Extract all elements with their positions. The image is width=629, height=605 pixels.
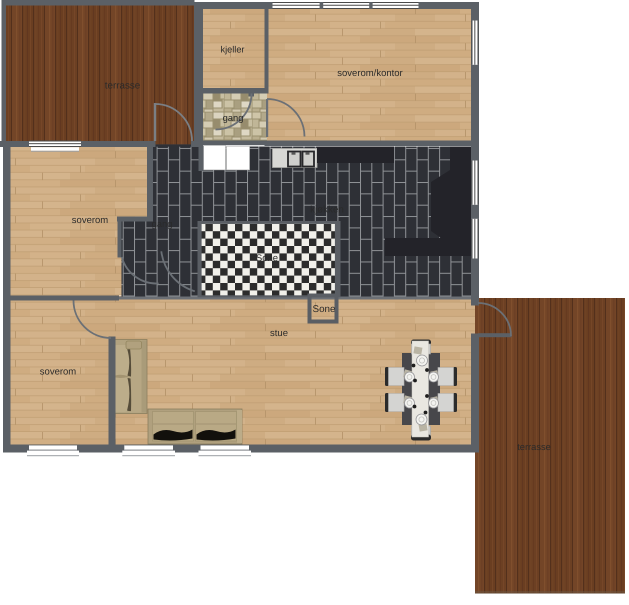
svg-text:terrasse: terrasse <box>517 442 551 452</box>
svg-text:Sone: Sone <box>256 253 278 264</box>
svg-text:stue: stue <box>270 328 288 339</box>
svg-text:terrasse: terrasse <box>105 80 141 91</box>
svg-text:kjøkken: kjøkken <box>310 204 344 215</box>
svg-text:gang: gang <box>152 218 173 229</box>
svg-text:soverom: soverom <box>72 215 109 226</box>
svg-text:soverom/kontor: soverom/kontor <box>337 68 402 79</box>
svg-text:soverom: soverom <box>40 366 77 377</box>
svg-text:gang: gang <box>223 112 244 123</box>
svg-text:Sone: Sone <box>313 304 336 315</box>
svg-text:kjeller: kjeller <box>220 44 244 54</box>
